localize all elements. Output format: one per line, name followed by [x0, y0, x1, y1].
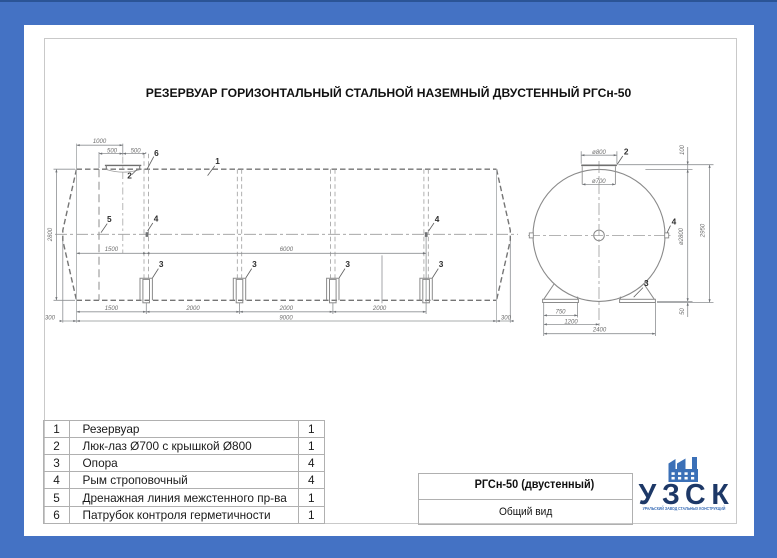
svg-text:3: 3	[439, 259, 444, 269]
svg-text:4: 4	[154, 214, 159, 224]
svg-text:2000: 2000	[372, 306, 387, 312]
svg-text:3: 3	[644, 278, 649, 288]
svg-text:1200: 1200	[564, 319, 578, 325]
svg-text:6: 6	[154, 148, 159, 158]
svg-text:ø2800: ø2800	[679, 227, 685, 245]
svg-text:3: 3	[159, 259, 164, 269]
svg-text:2950: 2950	[701, 223, 707, 238]
svg-text:1500: 1500	[105, 306, 119, 312]
svg-text:ø800: ø800	[592, 150, 606, 156]
svg-text:750: 750	[555, 309, 566, 315]
svg-text:2800: 2800	[48, 227, 54, 242]
svg-text:5: 5	[107, 214, 112, 224]
svg-text:1000: 1000	[93, 139, 107, 145]
svg-text:6000: 6000	[280, 247, 294, 253]
svg-text:50: 50	[680, 308, 686, 315]
svg-text:4: 4	[672, 216, 677, 226]
svg-text:2: 2	[624, 146, 629, 156]
svg-text:3: 3	[345, 259, 350, 269]
svg-text:1500: 1500	[105, 247, 119, 253]
svg-text:300: 300	[45, 315, 56, 321]
svg-text:9000: 9000	[279, 315, 293, 321]
svg-text:300: 300	[501, 315, 512, 321]
svg-text:2000: 2000	[185, 306, 200, 312]
svg-text:2: 2	[127, 170, 132, 180]
svg-text:500: 500	[131, 148, 142, 154]
svg-text:500: 500	[107, 148, 118, 154]
svg-text:2000: 2000	[279, 306, 294, 312]
svg-text:1: 1	[215, 156, 220, 166]
svg-text:100: 100	[680, 144, 686, 155]
svg-text:3: 3	[252, 259, 257, 269]
svg-text:ø700: ø700	[592, 179, 606, 185]
svg-text:2400: 2400	[592, 328, 607, 334]
svg-text:4: 4	[435, 214, 440, 224]
